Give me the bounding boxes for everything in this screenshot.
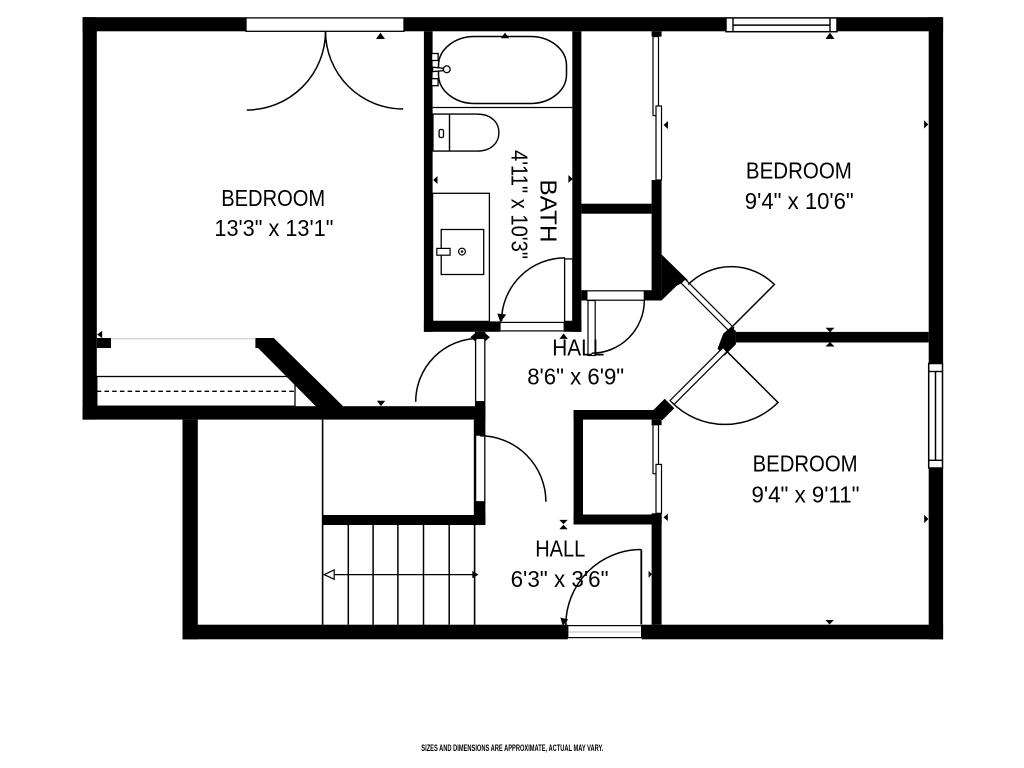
svg-text:9'4" x 9'11": 9'4" x 9'11" (752, 482, 860, 508)
svg-text:SIZES AND DIMENSIONS ARE APPRO: SIZES AND DIMENSIONS ARE APPROXIMATE, AC… (421, 743, 603, 753)
svg-text:8'6" x 6'9": 8'6" x 6'9" (527, 364, 624, 390)
svg-text:4'11" x 10'3": 4'11" x 10'3" (507, 150, 533, 259)
svg-text:HALL: HALL (535, 535, 585, 561)
svg-text:13'3" x 13'1": 13'3" x 13'1" (214, 215, 333, 241)
svg-text:BEDROOM: BEDROOM (221, 185, 325, 211)
svg-text:BEDROOM: BEDROOM (746, 157, 852, 183)
svg-text:9'4" x 10'6": 9'4" x 10'6" (745, 188, 854, 214)
svg-text:BATH: BATH (535, 180, 561, 243)
svg-text:6'3" x 3'6": 6'3" x 3'6" (511, 566, 609, 592)
svg-text:HALL: HALL (552, 335, 604, 361)
svg-text:BEDROOM: BEDROOM (753, 451, 858, 477)
